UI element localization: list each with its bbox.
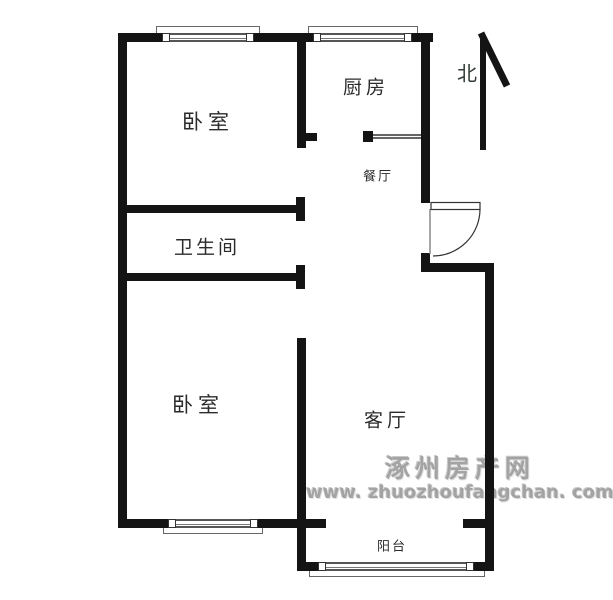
window-jamb — [162, 33, 170, 42]
north-label: 北 — [457, 58, 477, 87]
room-label-bathroom: 卫生间 — [174, 233, 240, 260]
wall-bedroom1-kitchen — [297, 33, 306, 148]
door-swing-arc — [433, 209, 480, 256]
door-jamb-bathroom-top — [296, 197, 305, 221]
window-jamb — [250, 519, 258, 528]
watermark-site-name: 涿州房产网 — [300, 455, 613, 482]
window-balcony-outer — [309, 570, 485, 577]
watermark: 涿州房产网 www. zhuozhoufangchan. com — [300, 455, 613, 503]
wall-balcony-right-corner — [474, 562, 494, 571]
entry-door-leaf — [431, 203, 480, 210]
window-jamb — [404, 33, 412, 42]
door-jamb-bathroom-bottom — [296, 265, 305, 289]
room-label-bedroom-bottom: 卧室 — [172, 389, 224, 419]
wall-living-balcony — [463, 519, 487, 528]
room-label-kitchen: 厨房 — [343, 73, 389, 100]
window-jamb — [318, 562, 326, 571]
window-bedroom2 — [168, 519, 258, 528]
window-jamb — [246, 33, 254, 42]
kitchen-pass-through-window — [373, 134, 421, 139]
window-jamb — [313, 33, 321, 42]
room-label-balcony: 阳台 — [377, 536, 407, 555]
window-balcony — [318, 562, 474, 571]
wall-entry-bottom — [421, 263, 494, 272]
wall-central-upper — [421, 33, 430, 203]
wall-bedroom2-right — [297, 338, 306, 571]
window-bedroom1 — [162, 33, 254, 42]
wall-kitchen-stub — [306, 133, 317, 141]
room-label-dining: 餐厅 — [363, 166, 393, 185]
window-jamb — [168, 519, 176, 528]
window-bedroom2-outer — [163, 527, 263, 534]
wall-balcony-left-corner — [297, 562, 318, 571]
window-jamb — [466, 562, 474, 571]
room-label-living: 客厅 — [364, 406, 410, 433]
window-kitchen — [313, 33, 412, 42]
door-and-north-overlay — [0, 0, 613, 600]
room-label-bedroom-top: 卧室 — [182, 106, 234, 136]
wall-pass-through-block — [363, 131, 373, 142]
floor-plan: 涿州房产网 www. zhuozhoufangchan. com — [0, 0, 613, 600]
watermark-site-url: www. zhuozhoufangchan. com — [300, 482, 613, 503]
north-arrow-barb — [481, 33, 507, 86]
wall-bathroom-top — [118, 205, 304, 213]
wall-bathroom-bottom — [118, 273, 298, 281]
